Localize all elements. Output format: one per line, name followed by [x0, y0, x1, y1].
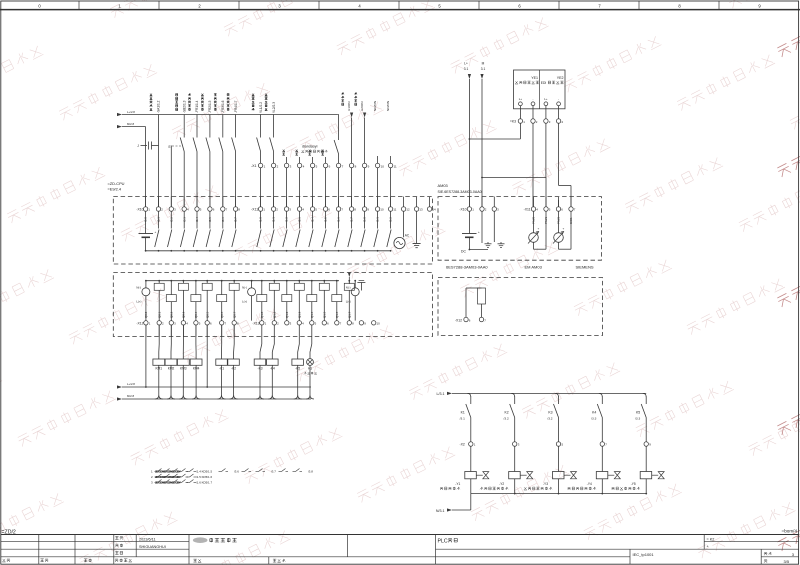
svg-text:U1/ON: U1/ON — [347, 102, 351, 111]
svg-text:11: 11 — [394, 164, 397, 168]
svg-text:N/3.1: N/3.1 — [436, 509, 445, 513]
svg-text:-FR1/1.4: -FR1/1.4 — [195, 100, 199, 113]
svg-text:Q0.7: Q0.7 — [232, 311, 236, 318]
svg-text:-X1: -X1 — [251, 164, 257, 168]
svg-text:YL2/2.3: YL2/2.3 — [272, 102, 276, 113]
svg-text:/3.2: /3.2 — [504, 417, 509, 421]
svg-text:-: - — [533, 97, 534, 101]
svg-text:+: + — [155, 230, 157, 234]
svg-text:N(-): N(-) — [242, 286, 247, 290]
svg-text:PLC: PLC — [438, 538, 448, 544]
svg-text:Q1.4: Q1.4 — [310, 311, 314, 318]
svg-text:Q0.2: Q0.2 — [169, 311, 173, 318]
svg-text:L+: L+ — [519, 97, 523, 101]
svg-text:Q0.1: Q0.1 — [157, 311, 161, 318]
svg-text:+: + — [563, 227, 565, 231]
svg-text:/3.7: /3.7 — [271, 469, 276, 473]
svg-text:-SA1/1.2: -SA1/1.2 — [157, 100, 161, 113]
svg-text:=K3: =K3 — [510, 120, 516, 124]
svg-text:diandaoyi: diandaoyi — [302, 145, 318, 149]
svg-text:-X10: -X10 — [136, 208, 143, 212]
svg-text:M: M — [482, 62, 485, 66]
svg-text:3/5: 3/5 — [784, 559, 790, 564]
svg-text:=ZD-CPU: =ZD-CPU — [108, 181, 125, 186]
svg-text:AC: AC — [405, 234, 410, 238]
svg-text:3.1: 3.1 — [481, 67, 486, 71]
svg-text:14: 14 — [432, 208, 436, 212]
svg-text:Q0.6: Q0.6 — [220, 311, 224, 318]
svg-text:=ZD/2: =ZD/2 — [2, 530, 16, 536]
svg-text:YL1/2.2: YL1/2.2 — [259, 102, 263, 113]
svg-text:10: 10 — [380, 208, 384, 212]
svg-text:EM AM03: EM AM03 — [525, 265, 543, 270]
svg-text:=E9/2.4: =E9/2.4 — [108, 187, 122, 192]
svg-text:=bom/4: =bom/4 — [782, 528, 798, 533]
svg-text:Q1.1: Q1.1 — [272, 311, 276, 318]
svg-text:Q0.4: Q0.4 — [194, 311, 198, 318]
svg-text:-Y1: -Y1 — [455, 482, 460, 486]
svg-text:-X11: -X11 — [524, 208, 531, 212]
svg-text:U2/ON: U2/ON — [360, 102, 364, 111]
svg-text:Q0.0: Q0.0 — [144, 311, 148, 318]
svg-text:K4: K4 — [592, 411, 596, 415]
svg-text:Q1.3: Q1.3 — [297, 311, 301, 318]
svg-text:-: - — [558, 97, 559, 101]
svg-text:13: 13 — [419, 208, 423, 212]
svg-text:-Y2: -Y2 — [499, 482, 504, 486]
svg-text:= K2: = K2 — [707, 537, 715, 541]
svg-text:NO/ON: NO/ON — [386, 101, 390, 111]
svg-text:-Y5: -Y5 — [631, 482, 636, 486]
svg-text:-X12: -X12 — [136, 321, 143, 325]
svg-text:/3.2: /3.2 — [547, 417, 552, 421]
svg-text:L+/2.8: L+/2.8 — [127, 110, 135, 114]
svg-text:/3.3: /3.3 — [635, 417, 640, 421]
svg-text:-X10: -X10 — [459, 208, 466, 212]
svg-text:M/2.8: M/2.8 — [127, 394, 134, 398]
svg-text:3.1: 3.1 — [464, 67, 469, 71]
svg-text:/1.5 KD5/1.6: /1.5 KD5/1.6 — [196, 475, 212, 479]
svg-text:-FR4/1.7: -FR4/1.7 — [234, 100, 238, 113]
svg-text:N(-): N(-) — [346, 286, 351, 290]
svg-text:Q0.3: Q0.3 — [182, 311, 186, 318]
svg-text:K3: K3 — [548, 411, 552, 415]
svg-text:/3.1: /3.1 — [460, 417, 465, 421]
svg-text:/3.8: /3.8 — [308, 469, 313, 473]
svg-text:IEC_tp1001: IEC_tp1001 — [633, 552, 655, 557]
svg-text:M/2.8: M/2.8 — [127, 122, 134, 126]
svg-text:L+: L+ — [544, 97, 548, 101]
svg-text:Q1.6: Q1.6 — [335, 311, 339, 318]
svg-text:+: + — [538, 227, 540, 231]
svg-text:E: E — [169, 145, 171, 149]
svg-text:-FR2/1.5: -FR2/1.5 — [208, 100, 212, 113]
svg-text:SHIGUANGHUI: SHIGUANGHUI — [139, 545, 166, 549]
svg-text:L/3.1: L/3.1 — [437, 392, 445, 396]
svg-text:-SB2/1.3: -SB2/1.3 — [182, 100, 186, 113]
svg-text:/3.3: /3.3 — [591, 417, 596, 421]
svg-text:SIEMENS: SIEMENS — [576, 265, 594, 270]
svg-text:DC: DC — [461, 249, 466, 253]
svg-text:EDI: EDI — [541, 81, 547, 85]
svg-text:10: 10 — [381, 164, 385, 168]
svg-text:/3.6: /3.6 — [234, 469, 239, 473]
svg-text:AM03: AM03 — [438, 183, 448, 188]
svg-text:K1: K1 — [461, 411, 465, 415]
svg-text:2023/6/11: 2023/6/11 — [139, 538, 156, 542]
svg-text:10: 10 — [377, 322, 381, 326]
svg-text:Q1.2: Q1.2 — [285, 311, 289, 318]
svg-text:+: + — [478, 230, 480, 234]
svg-text:12: 12 — [406, 208, 410, 212]
svg-text:N(-): N(-) — [136, 286, 141, 290]
svg-text:-X13: -X13 — [252, 321, 259, 325]
svg-text:K5: K5 — [636, 411, 640, 415]
svg-text:Q1.7: Q1.7 — [347, 311, 351, 318]
svg-text:L+: L+ — [464, 62, 468, 66]
svg-text:Q0.5: Q0.5 — [205, 311, 209, 318]
svg-text:11: 11 — [393, 208, 396, 212]
svg-text:L(+): L(+) — [242, 300, 247, 304]
svg-text:Q1.0: Q1.0 — [260, 311, 264, 318]
svg-text:/1.4 KD5/1.5: /1.4 KD5/1.5 — [196, 469, 212, 473]
svg-text:6ES7288-3AM03-0AA0: 6ES7288-3AM03-0AA0 — [446, 265, 488, 270]
svg-text:-X2: -X2 — [460, 443, 465, 447]
svg-text:YE2: YE2 — [557, 76, 564, 80]
svg-text:L(+): L(+) — [346, 300, 351, 304]
svg-text:K2: K2 — [505, 411, 509, 415]
svg-text:/1.6 KD5/1.7: /1.6 KD5/1.7 — [196, 480, 212, 484]
svg-text:L+/2.8: L+/2.8 — [127, 382, 135, 386]
svg-text:YE1: YE1 — [531, 76, 538, 80]
svg-text:-X11: -X11 — [251, 208, 258, 212]
svg-text:-Y4: -Y4 — [587, 482, 592, 486]
svg-text:Q1.5: Q1.5 — [322, 311, 326, 318]
svg-text:-Y3: -Y3 — [543, 482, 548, 486]
svg-text:SIE.6ES7288-3AM03-0AA0: SIE.6ES7288-3AM03-0AA0 — [438, 190, 482, 194]
svg-text:-X12: -X12 — [455, 318, 462, 322]
svg-text:NO/ON: NO/ON — [373, 101, 377, 111]
svg-text:L(+): L(+) — [136, 300, 141, 304]
svg-text:-FR3/1.6: -FR3/1.6 — [221, 100, 225, 113]
